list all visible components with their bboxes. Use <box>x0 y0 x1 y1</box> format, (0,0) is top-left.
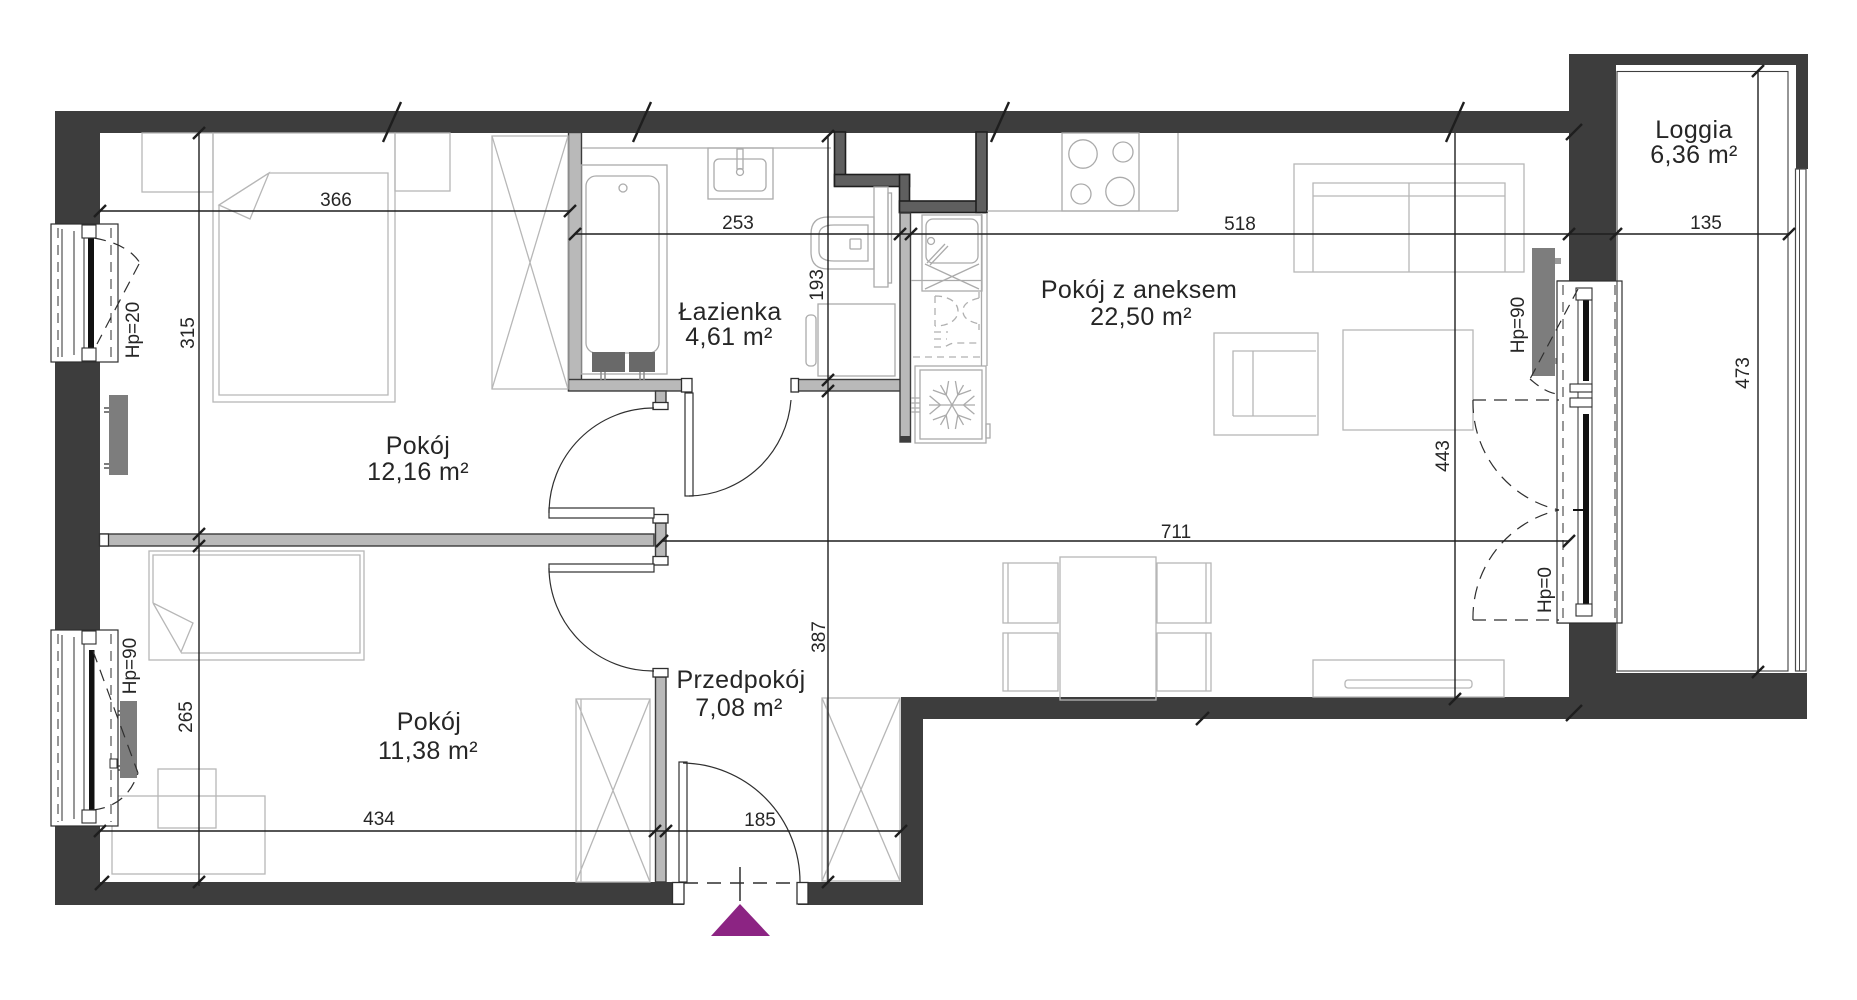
svg-text:473: 473 <box>1733 357 1754 389</box>
svg-text:265: 265 <box>176 701 197 733</box>
svg-text:711: 711 <box>1161 522 1191 543</box>
svg-text:22,50 m²: 22,50 m² <box>1090 303 1192 331</box>
svg-text:Łazienka: Łazienka <box>678 298 781 326</box>
svg-text:Pokój z aneksem: Pokój z aneksem <box>1041 276 1237 304</box>
svg-text:185: 185 <box>744 810 776 831</box>
svg-text:434: 434 <box>363 809 395 830</box>
svg-text:366: 366 <box>320 190 352 211</box>
svg-text:7,08 m²: 7,08 m² <box>695 694 783 722</box>
svg-text:518: 518 <box>1224 214 1256 235</box>
svg-text:253: 253 <box>722 213 754 234</box>
svg-text:Hp=90: Hp=90 <box>120 638 141 695</box>
svg-text:443: 443 <box>1433 440 1454 472</box>
svg-text:6,36 m²: 6,36 m² <box>1650 141 1738 169</box>
svg-text:Hp=0: Hp=0 <box>1535 567 1556 613</box>
svg-text:Pokój: Pokój <box>386 432 451 460</box>
svg-text:Przedpokój: Przedpokój <box>676 666 805 694</box>
svg-text:193: 193 <box>807 269 828 301</box>
svg-text:Hp=90: Hp=90 <box>1508 297 1529 354</box>
svg-text:135: 135 <box>1690 213 1722 234</box>
svg-text:11,38 m²: 11,38 m² <box>378 737 478 765</box>
svg-text:Loggia: Loggia <box>1655 116 1732 144</box>
svg-text:387: 387 <box>809 621 830 653</box>
svg-text:Hp=20: Hp=20 <box>123 302 144 359</box>
svg-text:4,61 m²: 4,61 m² <box>685 323 773 351</box>
svg-text:12,16 m²: 12,16 m² <box>367 458 469 486</box>
svg-text:315: 315 <box>178 317 199 349</box>
svg-text:Pokój: Pokój <box>397 708 462 736</box>
